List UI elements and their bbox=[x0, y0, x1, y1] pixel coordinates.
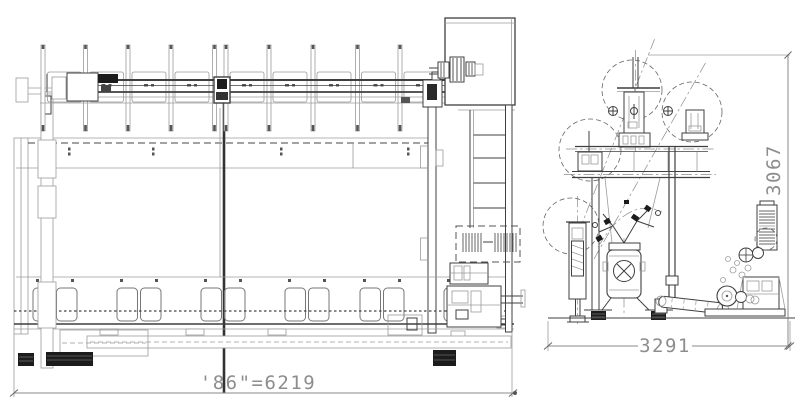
nip-roll bbox=[753, 248, 764, 259]
winder-housing bbox=[743, 277, 779, 309]
foot-block bbox=[18, 353, 34, 366]
machine-feet bbox=[18, 350, 456, 366]
tray-pair bbox=[117, 279, 161, 321]
body-rivet-dots bbox=[68, 148, 410, 156]
foot-block bbox=[46, 352, 93, 366]
winder-base bbox=[705, 309, 785, 316]
unwind-column bbox=[566, 196, 590, 324]
side-view bbox=[14, 18, 525, 393]
lower-equipment-boxes bbox=[447, 263, 525, 327]
winder-tower bbox=[757, 201, 777, 250]
winder-unit bbox=[705, 201, 785, 316]
access-ladder bbox=[470, 110, 505, 228]
technical-drawing: '86"=6219 3291 3067 bbox=[0, 0, 800, 407]
foot-block bbox=[433, 350, 456, 366]
tower-support-leg bbox=[506, 105, 513, 332]
end-width-dimension: 3291 bbox=[544, 321, 794, 357]
vessel-assembly bbox=[593, 200, 663, 314]
end-view bbox=[543, 38, 795, 324]
rail-center-joint bbox=[214, 77, 230, 103]
right-tower bbox=[429, 18, 525, 332]
tray-pair bbox=[285, 279, 329, 321]
end-width-dimension-text: 3291 bbox=[639, 335, 691, 357]
foot-block bbox=[591, 311, 606, 320]
top-rail-assembly bbox=[40, 45, 447, 131]
bottom-tray-band bbox=[14, 277, 514, 356]
gripper-linkage bbox=[593, 200, 663, 247]
cad-drawing-sheet: '86"=6219 3291 3067 bbox=[0, 0, 800, 407]
left-end-box bbox=[16, 78, 28, 102]
left-roll-stand bbox=[578, 131, 602, 171]
body-right-column bbox=[428, 83, 436, 333]
end-height-dimension-text: 3067 bbox=[763, 144, 785, 196]
side-width-dimension-text: '86"=6219 bbox=[200, 372, 316, 394]
right-roll-chuck bbox=[682, 110, 708, 140]
